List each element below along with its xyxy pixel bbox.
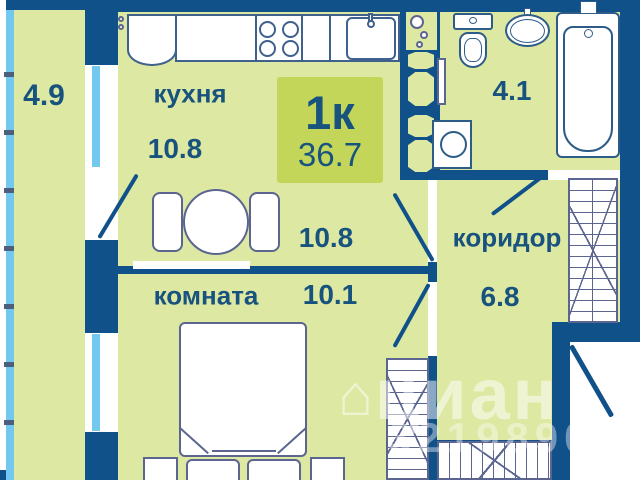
stove-burner bbox=[259, 40, 276, 57]
dining-chair bbox=[249, 192, 280, 252]
floor-plan: 4.9 кухня 10.8 10.8 4.1 коридор 6.8 комн… bbox=[0, 0, 640, 480]
vent-box-circle bbox=[420, 31, 428, 39]
door-hinge-dot bbox=[118, 24, 124, 30]
room-area-label: 10.1 bbox=[303, 279, 358, 311]
stove-burner bbox=[259, 21, 276, 38]
kitchen-area-label: 10.8 bbox=[148, 133, 203, 165]
balcony-area-label: 4.9 bbox=[23, 79, 65, 113]
vent-shaft-cell bbox=[408, 140, 434, 172]
pillow bbox=[247, 459, 301, 480]
watermark-listing-id: 32198905 bbox=[388, 414, 623, 462]
door-hinge-dot bbox=[118, 16, 124, 22]
room-window-gap bbox=[85, 333, 118, 432]
room-name-label: комната bbox=[154, 281, 259, 312]
corridor-name-label: коридор bbox=[453, 223, 562, 254]
kitchen-counter bbox=[175, 14, 257, 62]
corridor-area-label: 6.8 bbox=[481, 281, 520, 313]
dining-chair bbox=[152, 192, 183, 252]
kitchen-name-label: кухня bbox=[153, 79, 226, 110]
dining-table bbox=[183, 189, 249, 255]
bathroom-area-label: 4.1 bbox=[493, 75, 532, 107]
stove-burner bbox=[282, 21, 299, 38]
toilet-bowl-inner bbox=[464, 38, 482, 62]
window-sill-bench bbox=[133, 261, 250, 269]
apartment-badge: 1к 36.7 bbox=[277, 77, 383, 183]
nightstand bbox=[143, 457, 178, 480]
kitchen-window-glass bbox=[92, 66, 100, 167]
kitchen-window-gap bbox=[85, 65, 118, 172]
vent-shaft-cell bbox=[408, 115, 434, 137]
washing-machine-drum bbox=[440, 131, 467, 158]
badge-total-area: 36.7 bbox=[298, 138, 362, 171]
nightstand bbox=[310, 457, 345, 480]
kitchen-counter bbox=[301, 14, 331, 62]
stove-burner bbox=[282, 40, 299, 57]
pillow bbox=[186, 459, 240, 480]
vent-box-circle bbox=[416, 41, 423, 48]
hall-area-label: 10.8 bbox=[299, 222, 354, 254]
vent-shaft-cell bbox=[408, 52, 434, 69]
badge-rooms-count: 1к bbox=[305, 89, 355, 136]
cian-house-icon: ⌂ bbox=[338, 362, 373, 429]
toilet-button bbox=[469, 17, 477, 24]
wardrobe-corridor-right bbox=[568, 178, 618, 323]
bathtub-faucet-panel bbox=[580, 1, 597, 14]
balcony-glazing bbox=[6, 10, 14, 480]
bathroom-door-panel bbox=[437, 58, 446, 105]
bathtub-drain bbox=[584, 29, 593, 38]
bed bbox=[179, 322, 307, 457]
room-door-opening bbox=[428, 282, 437, 356]
vent-shaft-cell bbox=[408, 72, 434, 106]
kitchen-cabinet bbox=[127, 14, 177, 66]
bathtub-inner bbox=[563, 26, 613, 152]
vent-box-circle bbox=[410, 15, 424, 29]
bath-sink-inner bbox=[510, 19, 545, 43]
room-window-glass bbox=[92, 334, 100, 431]
blanket-edge bbox=[212, 450, 276, 452]
kitchen-faucet-dot bbox=[367, 20, 375, 28]
hall-floor bbox=[400, 180, 428, 266]
